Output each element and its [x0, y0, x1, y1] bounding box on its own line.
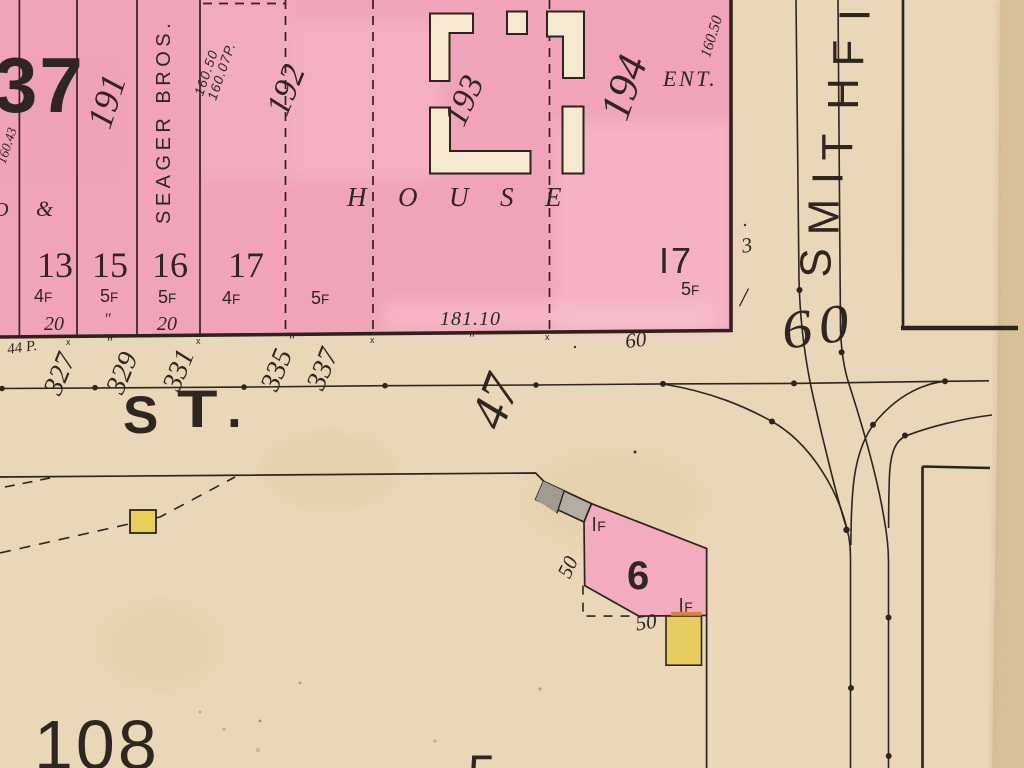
svg-text:x: x: [545, 332, 550, 342]
svg-text:181.10: 181.10: [440, 308, 501, 330]
svg-text:&: &: [36, 196, 54, 221]
svg-text:D: D: [0, 199, 9, 221]
svg-text:16: 16: [152, 245, 188, 285]
svg-text:S: S: [123, 386, 158, 445]
svg-text:I: I: [804, 172, 853, 184]
svg-text:13: 13: [37, 245, 73, 285]
svg-text:": ": [104, 311, 111, 328]
svg-text:x: x: [196, 336, 201, 346]
svg-text:lF: lF: [592, 515, 606, 536]
svg-text:H: H: [819, 78, 868, 110]
svg-text:": ": [288, 333, 295, 349]
svg-text:20: 20: [157, 313, 177, 335]
svg-text:F: F: [824, 40, 873, 67]
svg-text:.: .: [227, 380, 242, 439]
svg-text:15: 15: [92, 245, 128, 285]
svg-text:108: 108: [34, 706, 160, 768]
svg-text:x: x: [66, 337, 71, 347]
svg-text:5: 5: [468, 745, 496, 768]
svg-text:60: 60: [778, 292, 859, 361]
svg-text:T: T: [813, 134, 862, 161]
svg-text:": ": [106, 335, 113, 351]
svg-text:60: 60: [624, 327, 648, 353]
svg-text:37: 37: [0, 41, 85, 129]
svg-text:SEAGER BROS.: SEAGER BROS.: [153, 19, 175, 224]
svg-text:x: x: [370, 335, 375, 345]
svg-text:HOUSE: HOUSE: [346, 182, 593, 212]
svg-text:50: 50: [634, 609, 659, 636]
svg-text:20: 20: [44, 313, 64, 335]
svg-text:ENT.: ENT.: [662, 66, 717, 91]
svg-text:6: 6: [627, 554, 649, 598]
svg-text:": ": [468, 331, 475, 347]
svg-text:I7: I7: [659, 240, 693, 281]
svg-text:M: M: [800, 199, 849, 236]
svg-text:17: 17: [228, 245, 264, 285]
